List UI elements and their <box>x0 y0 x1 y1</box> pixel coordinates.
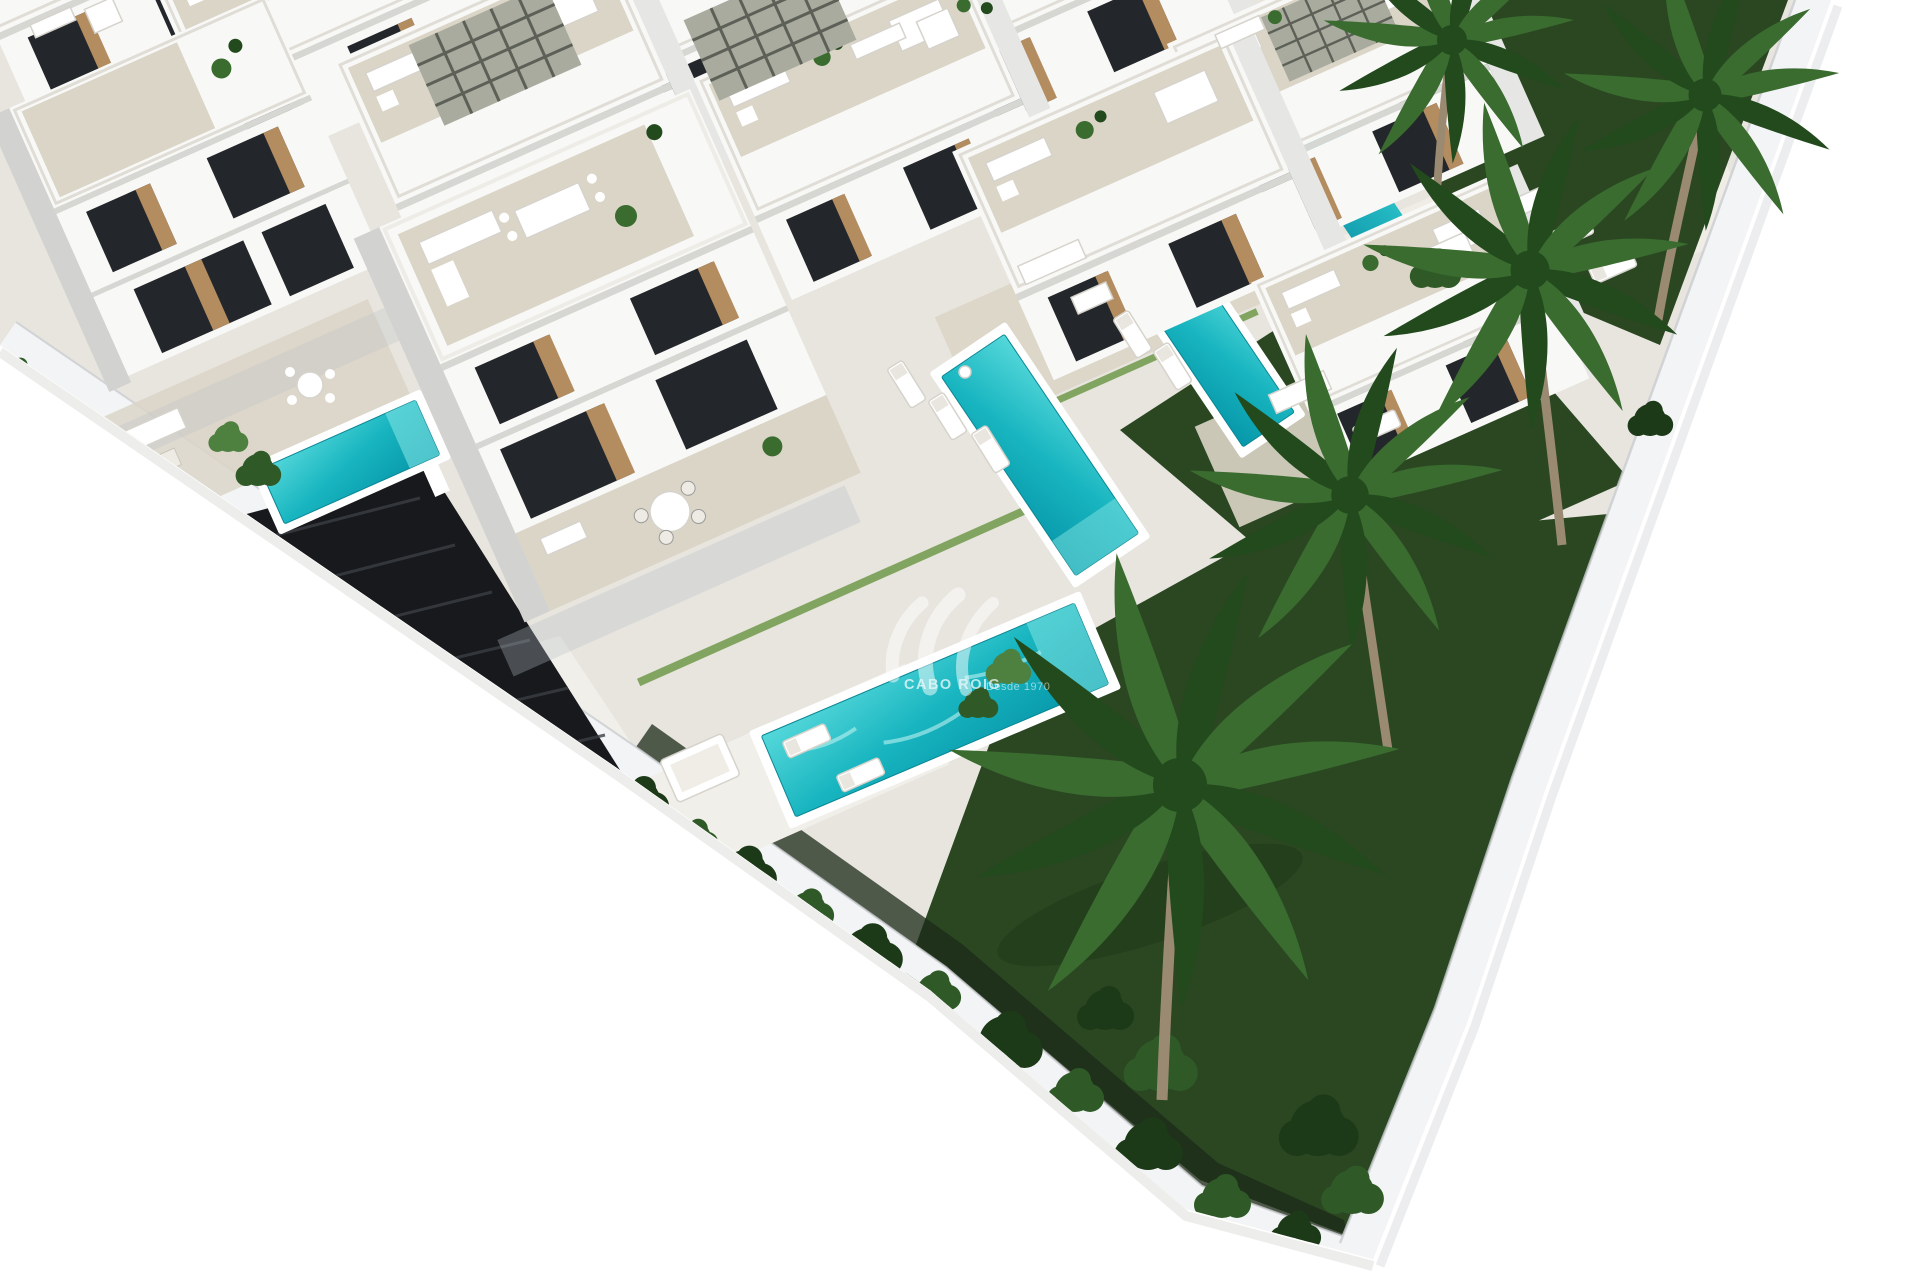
tagline-text: Desde 1970 <box>986 681 1050 693</box>
render-canvas: CABO ROIG Desde 1970 <box>0 0 1920 1280</box>
villa-development-render: CABO ROIG Desde 1970 <box>0 0 1920 1280</box>
